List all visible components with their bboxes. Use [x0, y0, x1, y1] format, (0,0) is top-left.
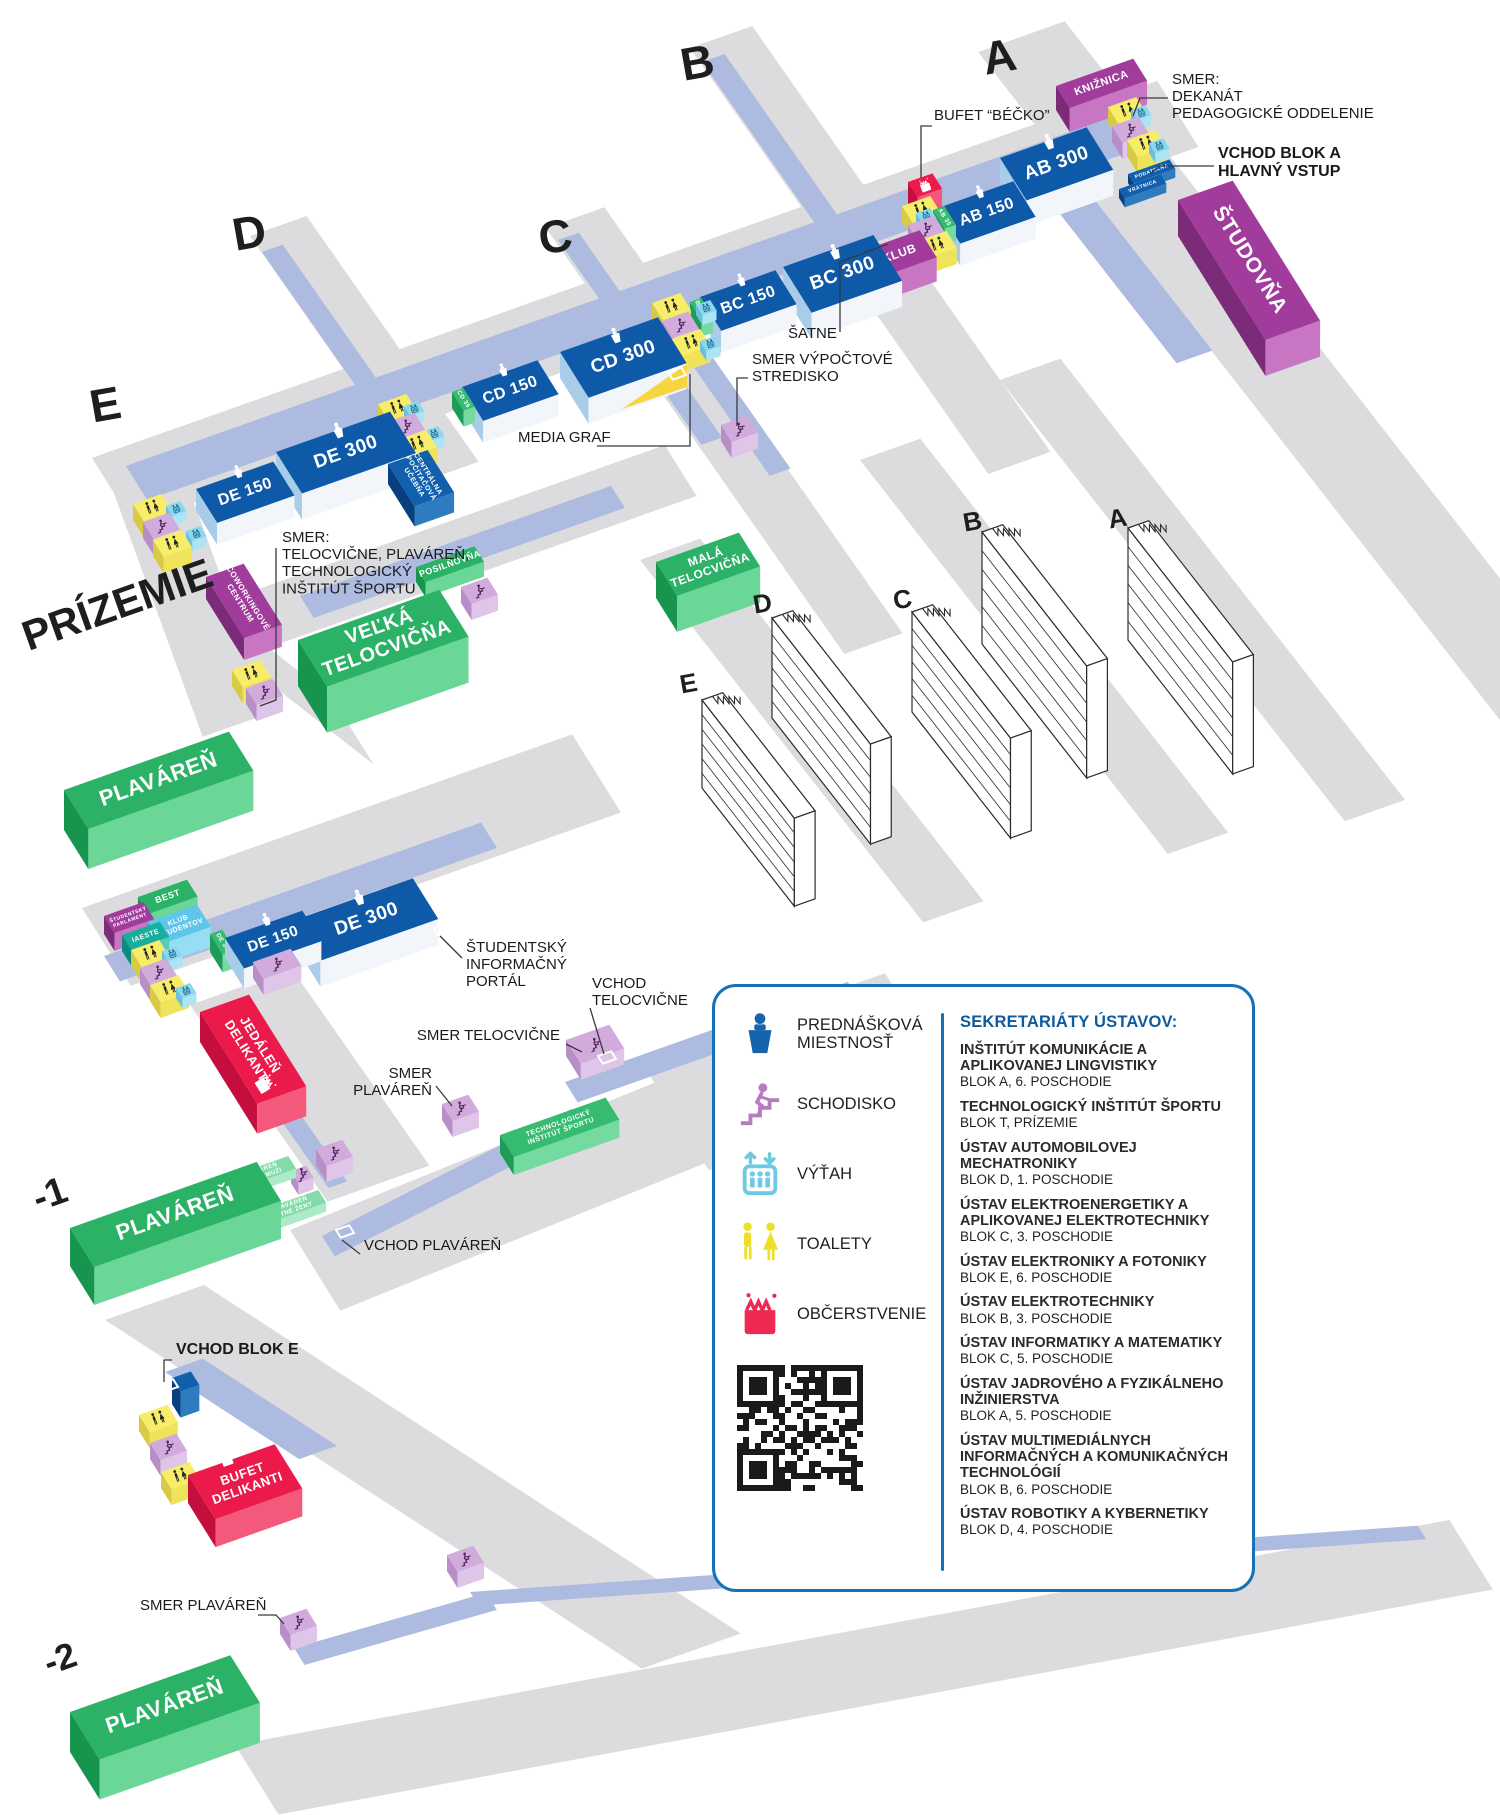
label-satne: ŠATNE	[788, 325, 837, 342]
tower-letter-b: B	[961, 505, 985, 538]
building-plavaren-m1: PLAVÁREŇ	[70, 1162, 281, 1305]
callout-text: SMER TELOCVIČNE	[417, 1027, 560, 1044]
qr-code	[737, 1365, 935, 1496]
label-vchod-plavaren: VCHOD PLAVÁREŇ	[364, 1237, 501, 1254]
sekretariat-name: ÚSTAV MULTIMEDIÁLNYCH INFORMAČNÝCH A KOM…	[960, 1433, 1234, 1482]
callout-text: SMER PLAVÁREŇ	[140, 1597, 266, 1614]
callout-text: SMER:	[1172, 71, 1220, 88]
legend-item-stairs: SCHODISKO	[737, 1081, 935, 1127]
label-vchod-telocvicne: VCHODTELOCVIČNE	[592, 975, 688, 1009]
callout-text: INŠTITÚT ŠPORTU	[282, 580, 416, 597]
sekretariat-name: INŠTITÚT KOMUNIKÁCIE A APLIKOVANEJ LINGV…	[960, 1042, 1234, 1074]
refreshments-icon	[737, 1291, 783, 1337]
campus-map-page: KNIŽNICAAB 300PODATEĽŇAVRÁTNICAŠTUDOVŇAA…	[0, 0, 1500, 1815]
callout-text: TELOCVIČNE	[592, 992, 688, 1009]
tower-letter-e: E	[677, 667, 699, 700]
building-plavaren-m2: PLAVÁREŇ	[70, 1655, 260, 1799]
sekretariat-entry: ÚSTAV ELEKTROTECHNIKYBLOK B, 3. POSCHODI…	[960, 1294, 1234, 1326]
sekretariat-name: ÚSTAV ELEKTROTECHNIKY	[960, 1294, 1234, 1310]
building-plavaren-prizemie: PLAVÁREŇ	[64, 732, 253, 869]
callout-text: PLAVÁREŇ	[353, 1082, 432, 1099]
legend-item-label: VÝŤAH	[797, 1165, 852, 1183]
sekretariat-entry: TECHNOLOGICKÝ INŠTITÚT ŠPORTUBLOK T, PRÍ…	[960, 1099, 1234, 1131]
sekretariat-location: BLOK D, 4. POSCHODIE	[960, 1522, 1234, 1538]
sekretariat-location: BLOK B, 3. POSCHODIE	[960, 1311, 1234, 1327]
sekretariat-location: BLOK A, 5. POSCHODIE	[960, 1408, 1234, 1424]
sekretariat-entry: ÚSTAV AUTOMOBILOVEJ MECHATRONIKYBLOK D, …	[960, 1140, 1234, 1188]
sekretariat-name: ÚSTAV ELEKTROENERGETIKY A APLIKOVANEJ EL…	[960, 1197, 1234, 1229]
callout-text: INFORMAČNÝ	[466, 956, 567, 973]
leader-line	[440, 936, 462, 958]
building-bufet-delikanti: BUFETDELIKANTI	[188, 1436, 302, 1547]
sekretariat-name: ÚSTAV JADROVÉHO A FYZIKÁLNEHO INŽINIERST…	[960, 1376, 1234, 1408]
stairs-icon	[737, 1081, 783, 1127]
callout-text: MEDIA GRAF	[518, 429, 611, 446]
callout-text: TELOCVIČNE, PLAVÁREŇ,	[282, 546, 469, 563]
legend-divider	[941, 1013, 944, 1571]
callout-text: SMER	[389, 1065, 433, 1082]
callout-text: VCHOD BLOK E	[176, 1341, 299, 1358]
sekretariat-name: ÚSTAV AUTOMOBILOVEJ MECHATRONIKY	[960, 1140, 1234, 1172]
legend-item-label: TOALETY	[797, 1235, 872, 1253]
legend-item-label: OBČERSTVENIE	[797, 1305, 925, 1323]
sekretariat-entry: ÚSTAV ELEKTRONIKY A FOTONIKYBLOK E, 6. P…	[960, 1254, 1234, 1286]
sekretariat-location: BLOK T, PRÍZEMIE	[960, 1115, 1234, 1131]
legend-item-label: PREDNÁŠKOVÁ MIESTNOSŤ	[797, 1016, 925, 1053]
sekretariat-name: TECHNOLOGICKÝ INŠTITÚT ŠPORTU	[960, 1099, 1234, 1115]
sekretariat-location: BLOK E, 6. POSCHODIE	[960, 1270, 1234, 1286]
sekretariat-name: ÚSTAV INFORMATIKY A MATEMATIKY	[960, 1335, 1234, 1351]
sekretariat-entry: ÚSTAV INFORMATIKY A MATEMATIKYBLOK C, 5.…	[960, 1335, 1234, 1367]
legend-icon-list: PREDNÁŠKOVÁ MIESTNOSŤSCHODISKOVÝŤAHTOALE…	[737, 1011, 935, 1573]
callout-text: TECHNOLOGICKÝ	[282, 563, 412, 580]
callout-text: SMER:	[282, 529, 330, 546]
legend-sekretariaty: SEKRETARIÁTY ÚSTAVOV: INŠTITÚT KOMUNIKÁC…	[960, 1011, 1234, 1573]
legend-panel: PREDNÁŠKOVÁ MIESTNOSŤSCHODISKOVÝŤAHTOALE…	[712, 984, 1255, 1592]
label-smer-plavaren-m2: SMER PLAVÁREŇ	[140, 1597, 266, 1614]
legend-item-wc: TOALETY	[737, 1221, 935, 1267]
legend-item-label: SCHODISKO	[797, 1095, 896, 1113]
sekretariat-name: ÚSTAV ROBOTIKY A KYBERNETIKY	[960, 1506, 1234, 1522]
legend-item-lectern: PREDNÁŠKOVÁ MIESTNOSŤ	[737, 1011, 935, 1057]
callout-text: VCHOD BLOK A	[1218, 145, 1341, 162]
label-smer-plavaren-m1: SMERPLAVÁREŇ	[353, 1065, 432, 1099]
callout-text: ŠTUDENTSKÝ	[466, 939, 567, 956]
sekretariat-entry: ÚSTAV ROBOTIKY A KYBERNETIKYBLOK D, 4. P…	[960, 1506, 1234, 1538]
tower-letter-d: D	[751, 587, 775, 620]
label-vchod-blok-e: VCHOD BLOK E	[176, 1341, 299, 1358]
callout-text: ŠATNE	[788, 325, 837, 342]
callout-text: BUFET “BÉČKO”	[934, 107, 1050, 124]
sekretariaty-title: SEKRETARIÁTY ÚSTAVOV:	[960, 1013, 1234, 1032]
toilets-icon	[737, 1221, 783, 1267]
callout-text: VCHOD	[592, 975, 646, 992]
callout-text: STREDISKO	[752, 368, 839, 385]
block-letter-e: E	[86, 376, 125, 433]
floor-label-minus1: -1	[27, 1169, 73, 1220]
label-smer-dekanat: SMER:DEKANÁTPEDAGOGICKÉ ODDELENIE	[1172, 71, 1374, 122]
callout-text: HLAVNÝ VSTUP	[1218, 161, 1341, 180]
label-smer-telocvicne: SMER TELOCVIČNE	[417, 1027, 560, 1044]
callout-text: SMER VÝPOČTOVÉ	[752, 351, 893, 368]
callout-text: PORTÁL	[466, 973, 526, 990]
elevator-icon	[737, 1151, 783, 1197]
block-letter-a: A	[978, 28, 1020, 85]
sekretariat-name: ÚSTAV ELEKTRONIKY A FOTONIKY	[960, 1254, 1234, 1270]
legend-item-lift: VÝŤAH	[737, 1151, 935, 1197]
lecture-room-icon	[737, 1011, 783, 1057]
label-studentsky-informacny-portal: ŠTUDENTSKÝINFORMAČNÝPORTÁL	[466, 939, 567, 990]
tower-letter-c: C	[891, 583, 915, 616]
sekretariat-location: BLOK C, 3. POSCHODIE	[960, 1229, 1234, 1245]
label-bufet-becko-label: BUFET “BÉČKO”	[934, 107, 1050, 124]
label-vchod-blok-a: VCHOD BLOK AHLAVNÝ VSTUP	[1218, 145, 1341, 180]
sekretariat-entry: ÚSTAV JADROVÉHO A FYZIKÁLNEHO INŽINIERST…	[960, 1376, 1234, 1424]
sekretariat-entry: ÚSTAV ELEKTROENERGETIKY A APLIKOVANEJ EL…	[960, 1197, 1234, 1245]
leader-line	[436, 1086, 452, 1106]
label-smer-vypoctove-stredisko: SMER VÝPOČTOVÉSTREDISKO	[752, 351, 893, 385]
sekretariat-location: BLOK B, 6. POSCHODIE	[960, 1482, 1234, 1498]
sekretariat-location: BLOK C, 5. POSCHODIE	[960, 1351, 1234, 1367]
legend-item-snack: OBČERSTVENIE	[737, 1291, 935, 1337]
sekretariat-entry: ÚSTAV MULTIMEDIÁLNYCH INFORMAČNÝCH A KOM…	[960, 1433, 1234, 1497]
walkway-strip	[294, 1593, 497, 1665]
label-media-graf: MEDIA GRAF	[518, 429, 611, 446]
block-letter-d: D	[228, 204, 270, 261]
callout-text: DEKANÁT	[1172, 88, 1243, 105]
sekretariat-location: BLOK A, 6. POSCHODIE	[960, 1074, 1234, 1090]
callout-text: PEDAGOGICKÉ ODDELENIE	[1172, 105, 1374, 122]
stairs-block	[461, 578, 498, 620]
floor-label-minus2: -2	[38, 1634, 82, 1683]
sekretariat-location: BLOK D, 1. POSCHODIE	[960, 1172, 1234, 1188]
block-letter-c: C	[534, 208, 576, 265]
sekretariat-entry: INŠTITÚT KOMUNIKÁCIE A APLIKOVANEJ LINGV…	[960, 1042, 1234, 1090]
callout-text: VCHOD PLAVÁREŇ	[364, 1237, 501, 1254]
